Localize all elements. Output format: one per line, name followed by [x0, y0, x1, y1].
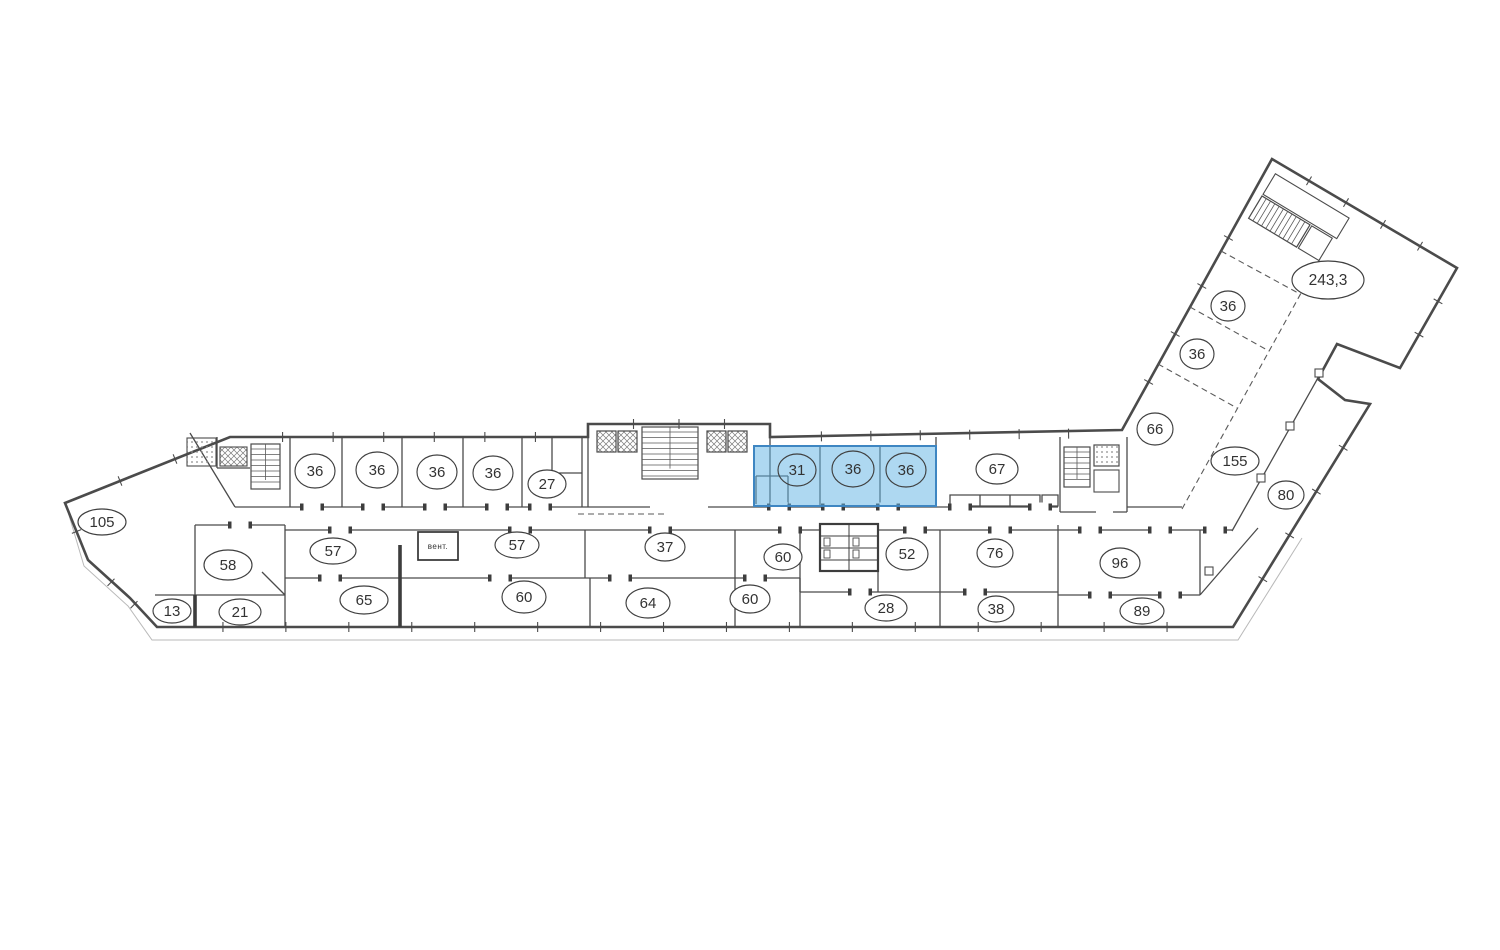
- room-area-number: 105: [89, 514, 114, 531]
- door-gap: [426, 503, 444, 512]
- shaft-hatched: [220, 447, 247, 466]
- door-gap: [1081, 526, 1099, 535]
- door-jamb: [764, 575, 768, 582]
- door-jamb: [1009, 527, 1013, 534]
- door-gap: [331, 526, 349, 535]
- room-area-number: 36: [369, 462, 386, 479]
- room-label: 76: [977, 539, 1013, 567]
- room-label: 37: [645, 533, 685, 561]
- door-jamb: [1049, 504, 1053, 511]
- building-outline: [65, 159, 1457, 627]
- room-area-number: 60: [775, 549, 792, 566]
- door-jamb: [382, 504, 386, 511]
- room-area-number: 76: [987, 545, 1004, 562]
- door-jamb: [848, 589, 852, 596]
- elevator-shaft: [597, 431, 616, 452]
- door-gap: [1031, 503, 1049, 512]
- door-jamb: [903, 527, 907, 534]
- door-gap: [906, 526, 924, 535]
- room-label: 21: [219, 599, 261, 625]
- room-label: 28: [865, 595, 907, 621]
- door-jamb: [669, 527, 673, 534]
- door-jamb: [506, 504, 510, 511]
- room-label: 65: [340, 586, 388, 614]
- room-label: 36: [1180, 339, 1214, 369]
- vent-label: вент.: [428, 542, 449, 551]
- door-jamb: [1028, 504, 1032, 511]
- door-jamb: [485, 504, 489, 511]
- room-label: 60: [730, 585, 770, 613]
- door-jamb: [1158, 592, 1162, 599]
- door-jamb: [300, 504, 304, 511]
- room-label: 36: [295, 454, 335, 488]
- room-label: 13: [153, 599, 191, 623]
- door-jamb: [1088, 592, 1092, 599]
- room-label: 60: [764, 544, 802, 570]
- door-gap: [951, 503, 969, 512]
- door-jamb: [528, 504, 532, 511]
- wc-room: [1094, 470, 1119, 492]
- room-label: 57: [310, 538, 356, 564]
- room-label: 66: [1137, 413, 1173, 445]
- room-label: 52: [886, 538, 928, 570]
- room-label: 36: [473, 456, 513, 490]
- door-jamb: [509, 575, 513, 582]
- room-label: 64: [626, 588, 670, 618]
- door-jamb: [778, 527, 782, 534]
- room-label: 38: [978, 596, 1014, 622]
- door-gap: [321, 574, 339, 583]
- room-label: 105: [78, 509, 126, 535]
- door-jamb: [1179, 592, 1183, 599]
- door-jamb: [328, 527, 332, 534]
- room-area-number: 36: [485, 465, 502, 482]
- elevator-shaft: [707, 431, 726, 452]
- room-area-number: 38: [988, 601, 1005, 618]
- door-gap: [746, 574, 764, 583]
- room-area-number: 57: [325, 543, 342, 560]
- door-gap: [531, 503, 549, 512]
- door-gap: [364, 503, 382, 512]
- door-gap: [231, 521, 249, 530]
- room-area-number: 243,3: [1309, 272, 1348, 289]
- room-area-number: 60: [742, 591, 759, 608]
- door-jamb: [963, 589, 967, 596]
- vent-box: вент.: [418, 532, 458, 560]
- room-area-number: 89: [1134, 603, 1151, 620]
- door-jamb: [1224, 527, 1228, 534]
- door-gap: [1161, 591, 1179, 600]
- toilet-block: [820, 524, 878, 571]
- room-area-number: 66: [1147, 421, 1164, 438]
- door-jamb: [1078, 527, 1082, 534]
- door-jamb: [924, 527, 928, 534]
- room-label: 60: [502, 581, 546, 613]
- door-jamb: [529, 527, 533, 534]
- room-area-number: 36: [845, 461, 862, 478]
- room-area-number: 36: [898, 462, 915, 479]
- service-room-dotted: [187, 438, 216, 466]
- door-jamb: [948, 504, 952, 511]
- room-label: 67: [976, 454, 1018, 484]
- room-area-number: 60: [516, 589, 533, 606]
- room-area-number: 36: [307, 463, 324, 480]
- room-label: 80: [1268, 481, 1304, 509]
- door-jamb: [1203, 527, 1207, 534]
- room-area-number: 36: [1189, 346, 1206, 363]
- door-jamb: [648, 527, 652, 534]
- room-area-number: 80: [1278, 487, 1295, 504]
- room-area-number: 28: [878, 600, 895, 617]
- room-label: 155: [1211, 447, 1259, 475]
- room-area-number: 155: [1222, 453, 1247, 470]
- room-area-number: 37: [657, 539, 674, 556]
- door-jamb: [318, 575, 322, 582]
- door-jamb: [339, 575, 343, 582]
- elevator-shaft: [728, 431, 747, 452]
- room-area-number: 36: [429, 464, 446, 481]
- room-area-number: 57: [509, 537, 526, 554]
- door-gap: [1151, 526, 1169, 535]
- elevator-shaft: [618, 431, 637, 452]
- door-jamb: [1099, 527, 1103, 534]
- door-jamb: [361, 504, 365, 511]
- floor-plan-page: вент. 1055813213636363627575765603764606…: [0, 0, 1500, 950]
- room-area-number: 13: [164, 603, 181, 620]
- door-jamb: [349, 527, 353, 534]
- door-jamb: [629, 575, 633, 582]
- door-gap: [1206, 526, 1224, 535]
- room-area-number: 58: [220, 557, 237, 574]
- room-label: 89: [1120, 598, 1164, 624]
- door-jamb: [321, 504, 325, 511]
- floor-plan-svg: вент. 1055813213636363627575765603764606…: [0, 0, 1500, 950]
- elevator-shaft: [1094, 445, 1119, 466]
- room-area-number: 21: [232, 604, 249, 621]
- door-jamb: [228, 522, 232, 529]
- room-label: 58: [204, 550, 252, 580]
- door-jamb: [488, 575, 492, 582]
- door-jamb: [869, 589, 873, 596]
- door-jamb: [988, 527, 992, 534]
- room-label: 57: [495, 532, 539, 558]
- room-area-number: 96: [1112, 555, 1129, 572]
- door-jamb: [1109, 592, 1113, 599]
- door-jamb: [984, 589, 988, 596]
- room-label: 36: [417, 455, 457, 489]
- door-jamb: [1148, 527, 1152, 534]
- door-jamb: [423, 504, 427, 511]
- room-area-number: 36: [1220, 298, 1237, 315]
- door-gap: [611, 574, 629, 583]
- room-label: 36: [356, 452, 398, 488]
- door-gap: [966, 588, 984, 597]
- door-gap: [488, 503, 506, 512]
- room-label: 96: [1100, 548, 1140, 578]
- door-jamb: [1169, 527, 1173, 534]
- room-label: 243,3: [1292, 261, 1364, 299]
- door-jamb: [608, 575, 612, 582]
- room-area-number: 27: [539, 476, 556, 493]
- room-area-number: 64: [640, 595, 657, 612]
- room-area-number: 52: [899, 546, 916, 563]
- door-gap: [781, 526, 799, 535]
- room-area-number: 31: [789, 462, 806, 479]
- door-gap: [1091, 591, 1109, 600]
- door-jamb: [444, 504, 448, 511]
- room-label: 36: [1211, 291, 1245, 321]
- door-gap: [303, 503, 321, 512]
- door-gap: [991, 526, 1009, 535]
- room-label: 27: [528, 470, 566, 498]
- room-area-number: 65: [356, 592, 373, 609]
- door-jamb: [743, 575, 747, 582]
- room-area-number: 67: [989, 461, 1006, 478]
- door-jamb: [249, 522, 253, 529]
- door-jamb: [799, 527, 803, 534]
- door-gap: [491, 574, 509, 583]
- door-gap: [851, 588, 869, 597]
- door-jamb: [969, 504, 973, 511]
- door-jamb: [549, 504, 553, 511]
